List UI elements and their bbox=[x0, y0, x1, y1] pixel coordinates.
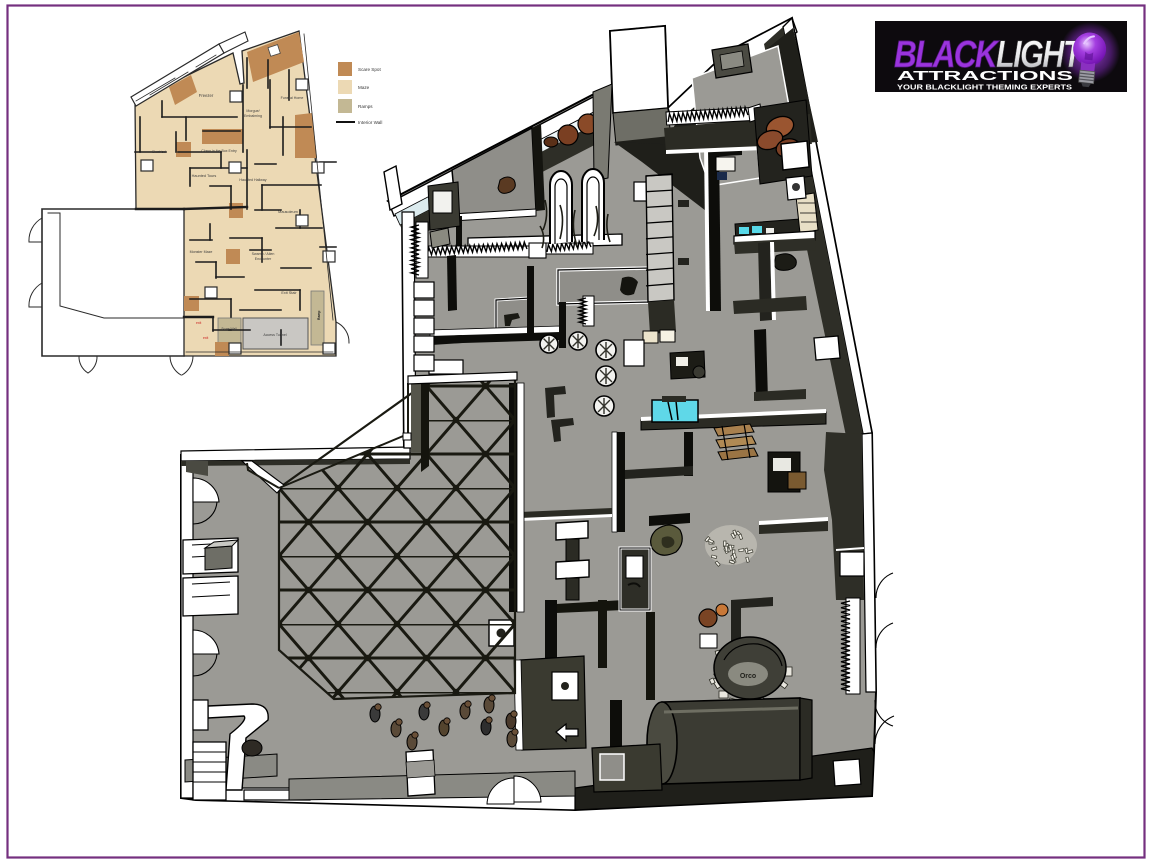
svg-text:Monster Maze: Monster Maze bbox=[190, 250, 213, 254]
svg-text:Haunted Tours: Haunted Tours bbox=[192, 174, 217, 178]
svg-text:Funeral Home: Funeral Home bbox=[281, 96, 304, 100]
svg-text:Haunted Hallway: Haunted Hallway bbox=[239, 178, 266, 182]
svg-text:Clown in the Box Entry: Clown in the Box Entry bbox=[201, 149, 237, 153]
svg-text:Scare Wall: Scare Wall bbox=[221, 327, 237, 331]
svg-text:Exit Stair: Exit Stair bbox=[281, 291, 297, 295]
svg-text:YOUR BLACKLIGHT THEMING EXPERT: YOUR BLACKLIGHT THEMING EXPERTS bbox=[897, 83, 1072, 92]
svg-text:Mausoleum: Mausoleum bbox=[278, 210, 298, 214]
svg-text:Interior Wall: Interior Wall bbox=[358, 120, 382, 125]
svg-text:Ramp: Ramp bbox=[317, 311, 321, 320]
svg-text:Orco: Orco bbox=[740, 673, 756, 680]
svg-text:ATTRACTIONS: ATTRACTIONS bbox=[897, 69, 1073, 83]
svg-text:Embalming: Embalming bbox=[244, 114, 262, 118]
svg-text:Morgue/: Morgue/ bbox=[246, 109, 259, 113]
svg-text:Maze: Maze bbox=[358, 85, 370, 90]
svg-text:Swamp / Alien: Swamp / Alien bbox=[252, 252, 275, 256]
svg-text:Freezer: Freezer bbox=[199, 93, 214, 98]
svg-text:Encounter: Encounter bbox=[255, 257, 272, 261]
svg-text:Electrical: Electrical bbox=[152, 150, 166, 154]
svg-text:Ramps: Ramps bbox=[358, 104, 373, 109]
svg-text:Access Tunnel: Access Tunnel bbox=[263, 333, 287, 337]
svg-text:Scare Spot: Scare Spot bbox=[358, 67, 381, 72]
svg-text:exit: exit bbox=[203, 336, 208, 340]
svg-text:exit: exit bbox=[196, 321, 201, 325]
